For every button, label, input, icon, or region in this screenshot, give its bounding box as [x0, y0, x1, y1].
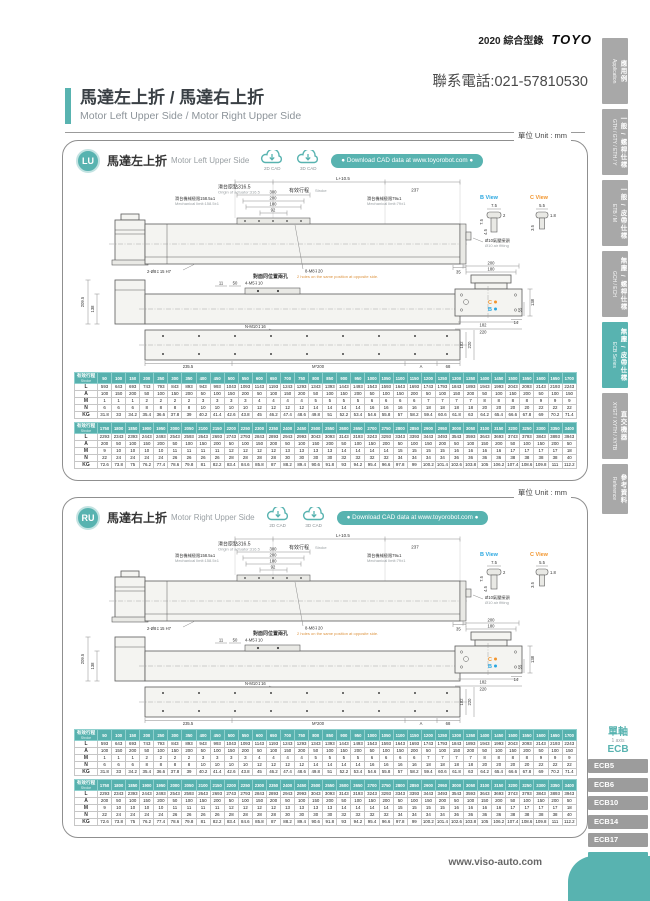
spec-table-stroke-50-1700: 有效行程Stroke501001502002503003504004505005… — [74, 729, 577, 776]
spec-cell: 77.4 — [154, 819, 168, 826]
spec-cell: 50 — [309, 391, 323, 398]
stroke-col-header: 3150 — [492, 423, 506, 434]
spec-cell: 8 — [182, 405, 196, 412]
spec-cell: 3443 — [421, 434, 435, 441]
row-label: M — [75, 398, 98, 405]
spec-cell: 100 — [98, 748, 112, 755]
spec-cell: 150 — [478, 441, 492, 448]
spec-cell: 993 — [210, 741, 224, 748]
spec-cell: 3293 — [379, 791, 393, 798]
spec-cell: 34 — [421, 455, 435, 462]
spec-cell: 1943 — [478, 384, 492, 391]
stroke-col-header: 250 — [154, 730, 168, 741]
stroke-col-header: 200 — [140, 373, 154, 384]
sidebar-tab-ecb-series[interactable]: 無塵 / 皮帶仕樣ECB Series — [602, 322, 628, 388]
spec-cell: 200 — [266, 798, 280, 805]
spec-cell: 34 — [407, 812, 421, 819]
spec-cell: 200 — [126, 748, 140, 755]
marker-b: B — [488, 307, 492, 313]
ev-dim-138: 138 — [530, 298, 535, 306]
spec-cell: 95.4 — [365, 462, 379, 469]
spec-cell: 3893 — [548, 791, 562, 798]
spec-cell: 28 — [238, 455, 252, 462]
spec-cell: 24 — [140, 812, 154, 819]
spec-cell: 32 — [379, 455, 393, 462]
cad-2d-download[interactable]: 2D CAD — [259, 150, 285, 171]
end-view: 200 180 C B 138 55 14 182 220 — [455, 261, 535, 335]
spec-cell: 67.8 — [520, 769, 534, 776]
spec-cell: 26 — [210, 455, 224, 462]
row-label: KG — [75, 819, 98, 826]
spec-cell: 36 — [464, 812, 478, 819]
spec-cell: 16 — [379, 405, 393, 412]
side-view-top: 2-Ø8↧15 H7 8-M8↧20 35 — [109, 571, 471, 632]
c-view-detail: C View 5.5 1.8 3.5 — [530, 552, 556, 588]
spec-cell: 17 — [506, 805, 520, 812]
spec-cell: 50 — [112, 441, 126, 448]
stroke-col-header: 3350 — [548, 423, 562, 434]
spec-cell: 200 — [492, 441, 506, 448]
spec-cell: 108.6 — [520, 819, 534, 826]
dim-235-5: 235.5 — [183, 364, 194, 369]
row-label: A — [75, 441, 98, 448]
row-label: L — [75, 791, 98, 798]
sidebar-tab-gantry[interactable]: 直交機器XYGT / XYTH / XYTB — [602, 393, 628, 459]
spec-cell: 6 — [126, 762, 140, 769]
spec-cell: 10 — [112, 448, 126, 455]
spec-cell: 33 — [112, 769, 126, 776]
row-label: M — [75, 805, 98, 812]
spec-cell: 3843 — [534, 791, 548, 798]
spec-cell: 101.4 — [435, 819, 449, 826]
spec-cell: 40.2 — [196, 412, 210, 419]
spec-cell: 150 — [252, 441, 266, 448]
stroke-col-header: 800 — [309, 730, 323, 741]
dim-11: 11 — [219, 638, 224, 643]
catalog-label: 2020 綜合型錄 — [478, 32, 543, 47]
spec-cell: 3543 — [449, 434, 463, 441]
spec-cell: 2743 — [224, 434, 238, 441]
stroke-col-header: 1450 — [492, 373, 506, 384]
stroke-col-header: 1550 — [520, 373, 534, 384]
c-view-label: C View — [530, 552, 549, 558]
spec-cell: 20 — [478, 762, 492, 769]
end-view: 200 180 C B 138 55 14 182 220 — [455, 618, 535, 692]
spec-cell: 2993 — [295, 434, 309, 441]
row-label: A — [75, 748, 98, 755]
cad-3d-label: 3D CAD — [300, 166, 317, 171]
spec-cell: 14 — [351, 448, 365, 455]
spec-cell: 2493 — [154, 791, 168, 798]
sidebar-tab-screw-standard[interactable]: 一般 / 螺桿仕樣GTH / GTY / ETH / Y — [602, 109, 628, 175]
spec-cell: 3893 — [548, 434, 562, 441]
spec-cell: 12 — [238, 448, 252, 455]
stroke-col-header: 700 — [281, 730, 295, 741]
spec-cell: 2843 — [252, 791, 266, 798]
spec-cell: 100 — [210, 391, 224, 398]
ev-dim-220: 220 — [480, 687, 488, 692]
spec-cell: 100 — [492, 391, 506, 398]
spec-cell: 66.6 — [506, 412, 520, 419]
spec-cell: 1 — [98, 398, 112, 405]
series-btn-ecb5[interactable]: ECB5 — [588, 759, 648, 773]
spec-cell: 3593 — [464, 434, 478, 441]
spec-cell: 150 — [449, 748, 463, 755]
stroke-col-header: 300 — [168, 730, 182, 741]
stroke-col-header: 2000 — [168, 423, 182, 434]
spec-row: A100150200501001502005010015020050100150… — [75, 748, 577, 755]
stroke-col-header: 950 — [351, 730, 365, 741]
stroke-col-header: 50 — [98, 730, 112, 741]
spec-cell: 100 — [126, 441, 140, 448]
spec-cell: 200 — [548, 441, 562, 448]
spec-cell: 2243 — [562, 384, 576, 391]
spec-cell: 1343 — [309, 741, 323, 748]
spec-cell: 64.2 — [478, 769, 492, 776]
spec-cell: 38 — [548, 455, 562, 462]
spec-cell: 200 — [492, 798, 506, 805]
spec-row: A100150200501001502005010015020050100150… — [75, 391, 577, 398]
spec-cell: 50 — [534, 748, 548, 755]
spec-cell: 14 — [337, 405, 351, 412]
sidebar-tab-reference[interactable]: 參考資料Reference — [602, 464, 628, 514]
spec-cell: 8 — [506, 398, 520, 405]
stroke-col-header: 1700 — [562, 730, 576, 741]
sidebar-tab-application[interactable]: 應用例Application — [602, 38, 628, 104]
spec-cell: 3 — [210, 755, 224, 762]
spec-cell: 106.2 — [492, 819, 506, 826]
spec-cell: 50 — [506, 798, 520, 805]
spec-cell: 12 — [266, 405, 280, 412]
stroke-col-header: 2300 — [252, 423, 266, 434]
spec-cell: 16 — [393, 405, 407, 412]
stroke-col-header: 2150 — [210, 423, 224, 434]
series-btn-ecb14[interactable]: ECB14 — [588, 815, 648, 829]
spec-cell: 100 — [323, 748, 337, 755]
spec-cell: 593 — [98, 741, 112, 748]
spec-cell: 50 — [281, 798, 295, 805]
spec-cell: 106.2 — [492, 462, 506, 469]
stroke-col-header: 1750 — [98, 423, 112, 434]
tab-label-zh: 應用例 — [617, 41, 627, 101]
stroke-col-header: 1800 — [112, 780, 126, 791]
spec-cell: 2043 — [506, 741, 520, 748]
spec-cell: 1193 — [266, 384, 280, 391]
spec-cell: 200 — [520, 391, 534, 398]
series-btn-ecb17[interactable]: ECB17 — [588, 833, 648, 847]
spec-cell: 28 — [266, 812, 280, 819]
cloud-download-icon — [295, 150, 321, 165]
spec-cell: 150 — [140, 441, 154, 448]
spec-cell: 22 — [534, 762, 548, 769]
spec-cell: 100 — [464, 441, 478, 448]
sidebar-tab-belt-standard[interactable]: 一般 / 皮帶仕樣ETB / M — [602, 180, 628, 246]
spec-cell: 150 — [365, 798, 379, 805]
spec-row: KG72.673.87576.277.478.679.88182.283.484… — [75, 462, 577, 469]
spec-cell: 61.8 — [449, 769, 463, 776]
spec-cell: 89.4 — [295, 462, 309, 469]
cad-2d-download[interactable]: 2D CAD — [265, 507, 291, 528]
dim-50: 50 — [233, 638, 238, 643]
spec-cell: 72.6 — [98, 462, 112, 469]
spec-cell: 100 — [548, 748, 562, 755]
stroke-col-header: 2600 — [337, 423, 351, 434]
spec-cell: 28 — [252, 455, 266, 462]
spec-cell: 2 — [168, 755, 182, 762]
stroke-col-header: 750 — [295, 373, 309, 384]
stroke-col-header: 2850 — [407, 780, 421, 791]
spec-cell: 40 — [562, 812, 576, 819]
stroke-col-header: 250 — [154, 373, 168, 384]
stroke-col-header: 2600 — [337, 780, 351, 791]
spec-cell: 100 — [520, 441, 534, 448]
spec-cell: 1443 — [337, 384, 351, 391]
dim-180: 180 — [270, 559, 278, 564]
spec-cell: 100 — [548, 391, 562, 398]
series-btn-ecb10[interactable]: ECB10 — [588, 796, 648, 810]
stroke-col-header: 3300 — [534, 780, 548, 791]
dim-180: 180 — [270, 202, 278, 207]
spec-cell: 85.8 — [252, 462, 266, 469]
spec-cell: 100 — [520, 798, 534, 805]
spec-cell: 50 — [224, 441, 238, 448]
spec-cell: 200 — [323, 798, 337, 805]
cad-3d-download[interactable]: 3D CAD — [301, 507, 327, 528]
page-title-en: Motor Left Upper Side / Motor Right Uppe… — [80, 110, 301, 122]
spec-cell: 3843 — [534, 434, 548, 441]
spec-cell: 150 — [196, 798, 210, 805]
stroke-col-header: 3250 — [520, 423, 534, 434]
stroke-col-header: 1850 — [126, 780, 140, 791]
spec-cell: 24 — [112, 812, 126, 819]
spec-cell: 2643 — [196, 434, 210, 441]
spec-cell: 100 — [351, 441, 365, 448]
spec-cell: 1393 — [323, 384, 337, 391]
ev-dim-220: 220 — [480, 330, 488, 335]
spec-cell: 8 — [520, 755, 534, 762]
stroke-col-header: 2750 — [379, 780, 393, 791]
stroke-col-header: 2000 — [168, 780, 182, 791]
spec-cell: 93 — [337, 462, 351, 469]
spec-cell: 50 — [337, 441, 351, 448]
spec-cell: 11 — [182, 805, 196, 812]
spec-cell: 12 — [224, 448, 238, 455]
spec-cell: 20 — [520, 762, 534, 769]
spec-cell: 3143 — [337, 791, 351, 798]
spec-cell: 6 — [112, 762, 126, 769]
spec-cell: 100 — [379, 748, 393, 755]
cad-3d-download[interactable]: 3D CAD — [295, 150, 321, 171]
row-label: KG — [75, 462, 98, 469]
dim-92: 92 — [271, 208, 276, 213]
spec-cell: 50 — [112, 798, 126, 805]
spec-cell: 3343 — [393, 434, 407, 441]
spec-cell: 26 — [168, 455, 182, 462]
spec-cell: 200 — [266, 441, 280, 448]
spec-cell: 5 — [351, 755, 365, 762]
spec-cell: 2143 — [534, 384, 548, 391]
opposite-holes-en: 2 holes on the same position at opposite… — [297, 274, 378, 279]
spec-cell: 33 — [112, 412, 126, 419]
spec-cell: 100 — [238, 441, 252, 448]
stroke-col-header: 1000 — [365, 730, 379, 741]
sidebar-tab-screw-cleanroom[interactable]: 無塵 / 螺桿仕樣GCH / ECH — [602, 251, 628, 317]
spec-cell: 743 — [140, 741, 154, 748]
spec-cell: 8 — [478, 755, 492, 762]
spec-cell: 12 — [266, 805, 280, 812]
section-header: LU 馬達左上折 Motor Left Upper Side 2D CAD 3D… — [63, 141, 587, 173]
spec-cell: 46.2 — [266, 412, 280, 419]
spec-cell: 200 — [548, 798, 562, 805]
spec-cell: 2493 — [154, 434, 168, 441]
cad-download-link[interactable]: ● Download CAD data at www.toyorobot.com… — [331, 154, 483, 168]
spec-cell: 150 — [168, 748, 182, 755]
stroke-col-header: 1250 — [435, 730, 449, 741]
spec-cell: 2 — [154, 398, 168, 405]
series-btn-ecb6[interactable]: ECB6 — [588, 778, 648, 792]
stroke-col-header: 1150 — [407, 730, 421, 741]
spec-cell: 91.8 — [323, 462, 337, 469]
spec-cell: 52.2 — [337, 412, 351, 419]
cad-download-link[interactable]: ● Download CAD data at www.toyorobot.com… — [337, 511, 489, 525]
spec-cell: 71.4 — [562, 412, 576, 419]
b-view-detail: B View 7.5 2 7.5 4.5 — [479, 195, 506, 235]
air-fitting-callout: Ø10氣壓接頭 Ø10 air fitting — [473, 237, 510, 248]
spec-cell: 32 — [351, 812, 365, 819]
spec-cell: 14 — [323, 762, 337, 769]
spec-cell: 109.8 — [534, 462, 548, 469]
spec-cell: 8 — [154, 762, 168, 769]
dim-68: 68 — [446, 364, 451, 369]
stroke-col-header: 1600 — [534, 730, 548, 741]
spec-cell: 22 — [548, 762, 562, 769]
spec-cell: 150 — [309, 441, 323, 448]
spec-cell: 50 — [449, 798, 463, 805]
spec-cell: 20 — [492, 405, 506, 412]
spec-cell: 200 — [295, 391, 309, 398]
hole-callout-carriage: 8-M8↧20 — [305, 626, 323, 631]
spec-cell: 26 — [182, 455, 196, 462]
spec-cell: 50 — [168, 798, 182, 805]
spec-cell: 150 — [337, 391, 351, 398]
spec-cell: 150 — [196, 441, 210, 448]
mech-right-en: Mechanical limit:79±1 — [367, 558, 406, 563]
b-dim-7-5-left: 7.5 — [479, 575, 484, 581]
spec-cell: 100 — [295, 798, 309, 805]
section-badge-ru: RU — [76, 506, 100, 530]
spec-cell: 6 — [98, 762, 112, 769]
spec-cell: 18 — [562, 448, 576, 455]
spec-cell: 30 — [309, 455, 323, 462]
spec-cell: 4 — [295, 398, 309, 405]
spec-cell: 26 — [210, 812, 224, 819]
spec-cell: 1543 — [365, 741, 379, 748]
spec-cell: 3743 — [506, 434, 520, 441]
spec-cell: 2943 — [281, 791, 295, 798]
spec-cell: 63 — [464, 412, 478, 419]
spec-cell: 70.2 — [548, 769, 562, 776]
stroke-col-header: 650 — [266, 730, 280, 741]
spec-cell: 50 — [281, 441, 295, 448]
spec-cell: 99 — [407, 819, 421, 826]
stroke-col-header: 2950 — [435, 423, 449, 434]
spec-cell: 69 — [534, 412, 548, 419]
spec-cell: 1143 — [252, 384, 266, 391]
spec-cell: 12 — [281, 762, 295, 769]
spec-cell: 64.2 — [478, 412, 492, 419]
spec-cell: 32 — [351, 455, 365, 462]
spec-cell: 16 — [449, 448, 463, 455]
spec-cell: 26 — [182, 812, 196, 819]
spec-cell: 1043 — [224, 741, 238, 748]
c-dim-1-8: 1.8 — [550, 213, 556, 218]
spec-cell: 7 — [421, 398, 435, 405]
spec-cell: 3793 — [520, 791, 534, 798]
spec-row: KG31.83334.235.436.637.83940.241.442.643… — [75, 412, 577, 419]
spec-cell: 3243 — [365, 791, 379, 798]
section-body: L+10.5 滑台原點316.5 Origin of actuator:316.… — [63, 531, 587, 826]
spec-cell: 150 — [140, 798, 154, 805]
spec-cell: 3643 — [478, 434, 492, 441]
spec-cell: 20 — [520, 405, 534, 412]
spec-cell: 14 — [365, 805, 379, 812]
spec-cell: 37.8 — [168, 769, 182, 776]
spec-cell: 94.2 — [351, 819, 365, 826]
spec-cell: 30 — [295, 812, 309, 819]
cad-3d-label: 3D CAD — [305, 523, 322, 528]
stroke-col-header: 2800 — [393, 780, 407, 791]
spec-cell: 34.2 — [126, 412, 140, 419]
spec-cell: 26 — [196, 812, 210, 819]
spec-cell: 3693 — [492, 434, 506, 441]
spec-cell: 47.4 — [281, 769, 295, 776]
spec-cell: 8 — [154, 405, 168, 412]
spec-cell: 32 — [365, 812, 379, 819]
spec-cell: 57 — [393, 769, 407, 776]
spec-cell: 6 — [98, 405, 112, 412]
spec-cell: 28 — [224, 812, 238, 819]
spec-cell: 2993 — [295, 791, 309, 798]
spec-cell: 11 — [196, 805, 210, 812]
spec-cell: 50 — [365, 391, 379, 398]
stroke-col-header: 550 — [238, 730, 252, 741]
spec-cell: 4 — [295, 755, 309, 762]
spec-cell: 2893 — [266, 791, 280, 798]
spec-cell: 13 — [309, 448, 323, 455]
spec-cell: 793 — [154, 384, 168, 391]
spec-cell: 105 — [478, 462, 492, 469]
spec-cell: 6 — [407, 398, 421, 405]
side-view-top: 2-Ø8↧15 H7 8-M8↧20 35 — [109, 214, 471, 275]
tab-label-en: GTH / GTY / ETH / Y — [611, 112, 617, 172]
spec-cell: 50 — [393, 441, 407, 448]
series-group-code: ECB — [588, 744, 648, 755]
top-dimensions: L+10.5 滑台原點316.5 Origin of actuator:316.… — [175, 533, 460, 581]
spec-cell: 95.4 — [365, 819, 379, 826]
spec-cell: 100 — [351, 798, 365, 805]
stroke-col-header: 2750 — [379, 423, 393, 434]
tab-label-en: ECB Series — [611, 325, 617, 385]
spec-cell: 107.4 — [506, 462, 520, 469]
dim-m200: M*200 — [312, 721, 325, 726]
stroke-col-header: 1200 — [421, 730, 435, 741]
b-dim-7-5-top: 7.5 — [491, 560, 497, 565]
page-title: 馬達左上折 / 馬達右上折 — [80, 88, 301, 108]
spec-cell: 150 — [281, 391, 295, 398]
spec-cell: 13 — [323, 805, 337, 812]
spec-cell: 8 — [478, 398, 492, 405]
hole-callout-carriage: 8-M8↧20 — [305, 269, 323, 274]
